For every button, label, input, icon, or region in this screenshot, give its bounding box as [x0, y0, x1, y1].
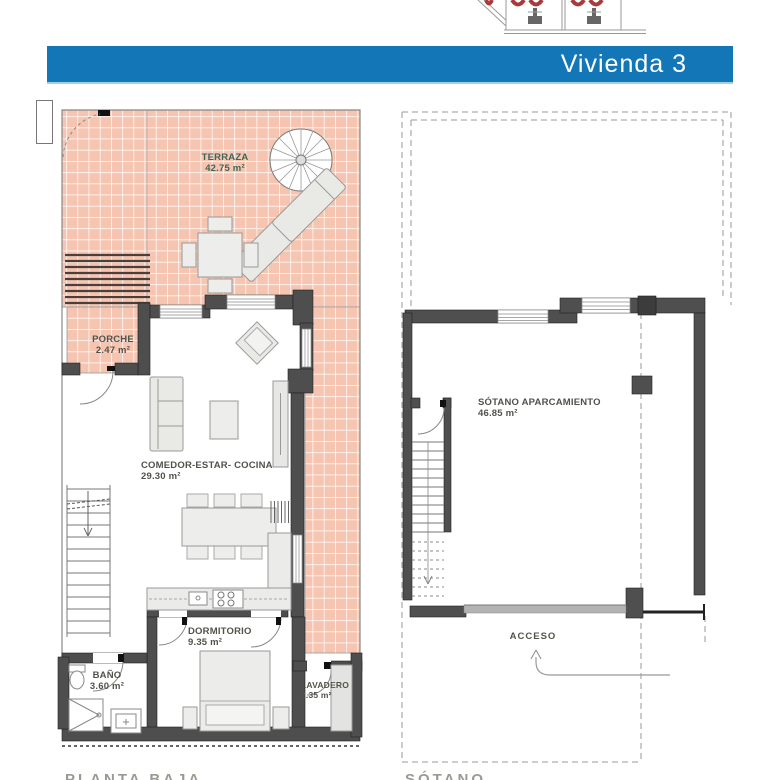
- shower: [69, 699, 103, 731]
- room-label-bano: BAÑO 3.60 m²: [71, 671, 143, 693]
- stove: [213, 590, 243, 608]
- room-label-dormitorio: DORMITORIO 9.35 m²: [188, 627, 298, 649]
- ground-floor-plan: TERRAZA 42.75 m² PORCHE 2.47 m² COMEDOR-…: [55, 105, 367, 755]
- tv-unit: [273, 381, 288, 467]
- room-label-terraza: TERRAZA 42.75 m²: [175, 153, 275, 175]
- sofa: [150, 377, 183, 451]
- sink: [189, 592, 207, 605]
- access-arrow: [531, 650, 670, 675]
- title-bar: Vivienda 3: [47, 46, 733, 84]
- retaining-wall: [643, 604, 704, 620]
- bed: [183, 651, 289, 731]
- basement-plan: SÓTANO APARCAMIENTO 46.85 m² ACCESO: [398, 110, 738, 765]
- mid-pillar: [632, 376, 652, 394]
- interior-stairs: [67, 485, 110, 637]
- footprint-dashed: [402, 112, 731, 762]
- page-title: Vivienda 3: [561, 50, 733, 79]
- corner-pillar: [638, 296, 656, 315]
- access-label: ACCESO: [490, 632, 576, 643]
- caption-sotano: SÓTANO: [405, 771, 486, 780]
- site-key-plan: [476, 0, 648, 40]
- basement-walls: [403, 298, 705, 618]
- brochure-page: Vivienda 3: [0, 0, 780, 780]
- armchair: [236, 322, 278, 364]
- room-label-porche: PORCHE 2.47 m²: [70, 335, 156, 357]
- garage-door: [464, 605, 626, 613]
- room-label-comedor: COMEDOR-ESTAR- COCINA 29.30 m²: [141, 461, 301, 483]
- coffee-table: [210, 401, 238, 439]
- basement-stairs: [412, 400, 446, 596]
- exterior-detail: [36, 100, 53, 144]
- dining-set: [182, 494, 276, 559]
- bath-sink: [111, 709, 141, 733]
- room-label-sotano: SÓTANO APARCAMIENTO 46.85 m²: [478, 398, 638, 420]
- caption-planta-baja: PLANTA BAJA: [65, 771, 202, 780]
- room-label-lavadero: LAVADERO 2.35 m²: [301, 681, 363, 701]
- site-units: [506, 0, 621, 30]
